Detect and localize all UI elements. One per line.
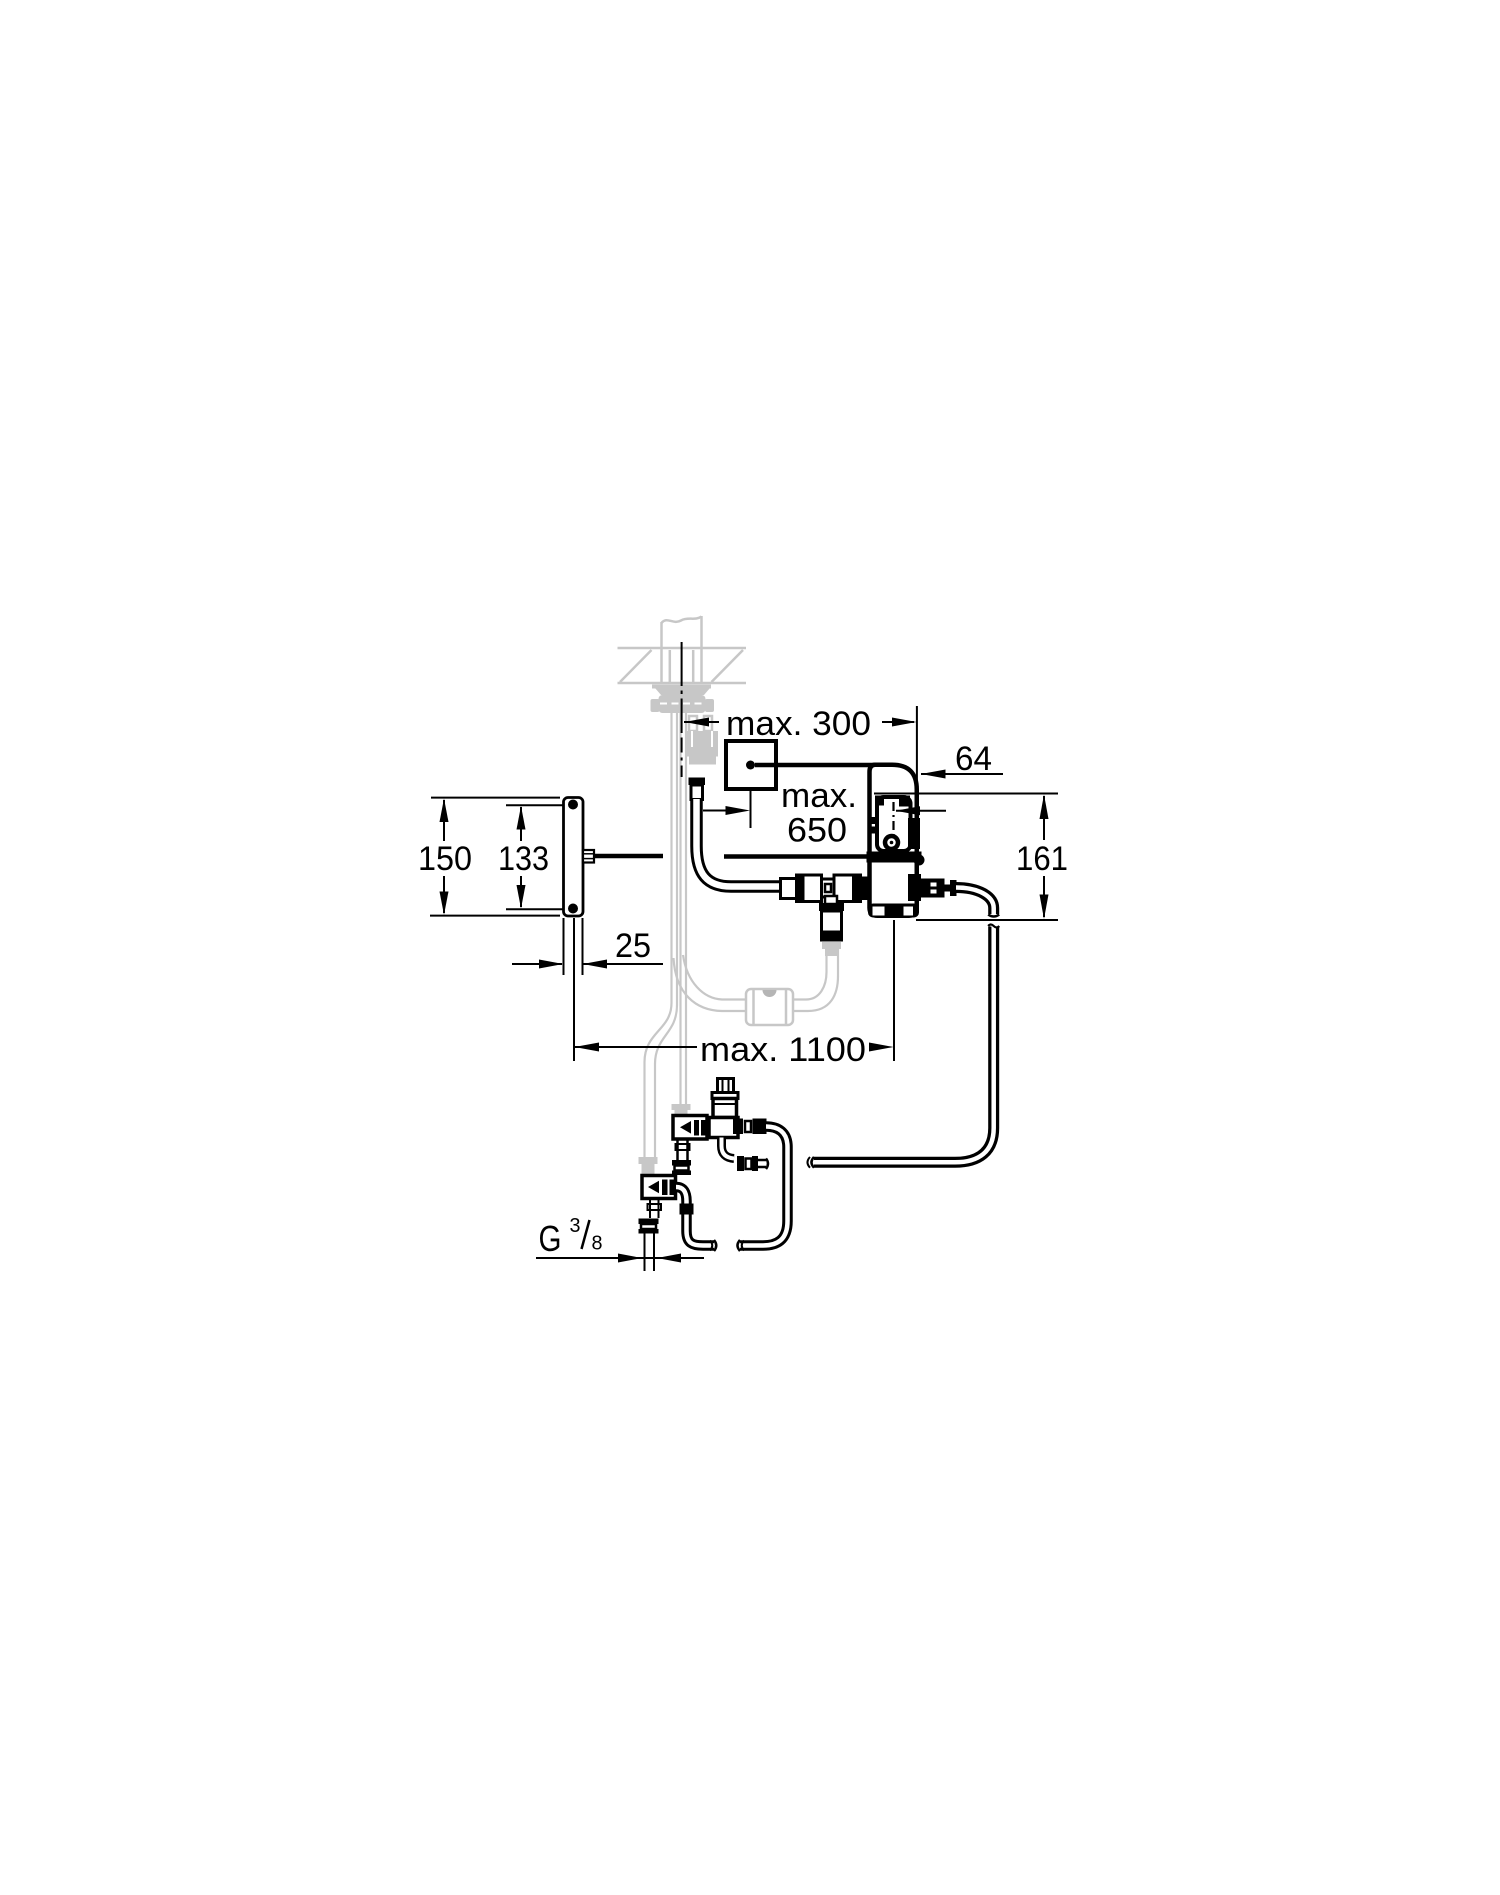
svg-text:max. 300: max. 300 — [726, 705, 871, 743]
svg-text:max. 1100: max. 1100 — [700, 1031, 866, 1069]
svg-text:150: 150 — [418, 840, 472, 878]
svg-text:64: 64 — [955, 740, 992, 778]
svg-text:25: 25 — [615, 927, 651, 965]
svg-text:G: G — [539, 1218, 562, 1259]
svg-text:133: 133 — [498, 840, 549, 878]
svg-text:max.: max. — [781, 777, 857, 815]
svg-text:3: 3 — [570, 1215, 581, 1237]
svg-text:650: 650 — [787, 812, 847, 850]
svg-text:161: 161 — [1016, 840, 1068, 878]
svg-text:8: 8 — [592, 1233, 603, 1255]
